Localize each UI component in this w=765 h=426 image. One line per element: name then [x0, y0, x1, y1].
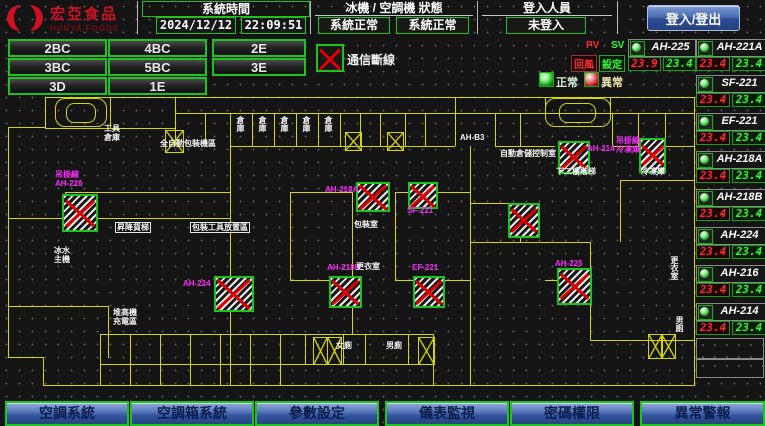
date-display: 2024/12/12 — [156, 17, 236, 34]
normal-label: 正常 — [556, 74, 578, 90]
floorplan-wall — [65, 192, 230, 193]
status-lamp-icon — [630, 41, 645, 56]
unit-panel-AH-218A[interactable]: AH-218A — [696, 151, 765, 169]
room-label: 昇降貨梯 — [115, 222, 151, 233]
nav-button-3[interactable]: 參數設定 — [255, 401, 379, 426]
nav-button-5[interactable]: 密碼權限 — [510, 401, 634, 426]
unit-panel-AH-221A[interactable]: AH-221A — [696, 39, 765, 57]
room-label: 更衣室 — [670, 256, 679, 280]
sv-value: 23.4 — [732, 169, 765, 183]
nav-button-2[interactable]: 空調箱系統 — [130, 401, 254, 426]
floorplan-wall — [318, 113, 319, 146]
pv-label: PV — [586, 40, 599, 51]
empty-unit-slot — [696, 338, 764, 359]
floorplan-wall — [8, 127, 9, 358]
status-lamp-icon — [698, 77, 713, 92]
floorplan-wall — [280, 334, 281, 385]
sv-value: 23.4 — [732, 207, 765, 221]
hmi-screen: 宏亞食品 HUNYA FOODS 系統時間 2024/12/12 22:09:5… — [0, 0, 765, 426]
floorplan-wall — [590, 340, 694, 341]
floorplan-wall — [8, 127, 46, 128]
floorplan-wall — [252, 113, 253, 146]
sv-value: 23.4 — [663, 57, 696, 71]
unit-name: AH-224 — [714, 229, 765, 241]
room-label: 冷凍庫 — [641, 167, 665, 176]
floorplan-wall — [220, 334, 221, 385]
nav-button-1[interactable]: 空調系統 — [5, 401, 129, 426]
floorplan-wall — [130, 334, 131, 385]
floorplan-wall — [520, 113, 521, 146]
floorplan-wall — [230, 146, 231, 386]
equipment-label: AH-214 — [587, 144, 615, 153]
floor-button-3E[interactable]: 3E — [212, 58, 306, 76]
return-air-label: 回風 — [571, 55, 597, 72]
unit-name: AH-214 — [714, 305, 765, 317]
login-logout-button[interactable]: 登入/登出 — [647, 5, 740, 31]
logo-title: 宏亞食品 — [50, 3, 119, 24]
status-lamp-icon — [698, 305, 713, 320]
unit-panel-SF-221[interactable]: SF-221 — [696, 75, 765, 93]
room-label: 倉庫 — [324, 116, 333, 132]
normal-lamp-icon — [539, 72, 554, 87]
unit-values-AH-221A: 23.423.4 — [696, 57, 764, 71]
setpoint-label: 設定 — [599, 55, 625, 72]
room-label: 包裝室 — [354, 220, 378, 229]
offline-unit-icon — [356, 182, 390, 212]
logo-subtitle: HUNYA FOODS — [50, 24, 119, 33]
room-label: 包裝工具放置區 — [190, 222, 250, 233]
floorplan-wall — [694, 97, 695, 386]
sv-label: SV — [611, 40, 624, 51]
equipment-label: EF-221 — [412, 263, 438, 272]
header: 宏亞食品 HUNYA FOODS 系統時間 2024/12/12 22:09:5… — [0, 0, 765, 36]
equipment-label: SF-221 — [407, 206, 433, 215]
room-label: 下二樓階梯 — [556, 167, 596, 176]
floorplan-wall — [108, 306, 109, 358]
floorplan-wall — [408, 334, 409, 364]
floor-button-2E[interactable]: 2E — [212, 39, 306, 57]
room-label: 堆高機 充電區 — [113, 308, 137, 326]
sv-value: 23.4 — [732, 321, 765, 335]
pv-value: 23.4 — [696, 207, 730, 221]
room-label: 倉庫 — [280, 116, 289, 132]
floor-button-5BC[interactable]: 5BC — [108, 58, 207, 76]
status-lamp-icon — [698, 115, 713, 130]
floorplan-wall — [612, 113, 613, 146]
floorplan-wall — [380, 113, 381, 146]
unit-values-AH-218A: 23.423.4 — [696, 169, 764, 183]
floorplan-wall — [425, 113, 426, 146]
unit-name: AH-218B — [714, 191, 765, 203]
sv-value: 23.4 — [732, 57, 765, 71]
ahu-status: 系統正常 — [396, 17, 469, 34]
room-label: 全自動包裝機區 — [160, 139, 216, 148]
floorplan-wall — [340, 113, 341, 146]
sv-value: 23.4 — [732, 283, 765, 297]
offline-legend-icon — [316, 44, 344, 72]
floorplan-wall — [8, 306, 108, 307]
elevator-icon — [55, 98, 107, 127]
equipment-label: 吊掛線 冷凍庫 — [616, 136, 640, 154]
status-lamp-icon — [698, 41, 713, 56]
floorplan-wall — [100, 334, 433, 335]
offline-unit-icon — [508, 203, 540, 238]
status-lamp-icon — [698, 153, 713, 168]
pv-value: 23.4 — [696, 321, 730, 335]
offline-legend-label: 通信斷線 — [347, 51, 395, 68]
floorplan-wall — [455, 97, 456, 146]
status-lamp-icon — [698, 229, 713, 244]
empty-unit-slot — [696, 359, 764, 378]
offline-unit-icon — [214, 276, 254, 312]
equipment-label: AH-218A — [325, 185, 358, 194]
nav-button-6[interactable]: 異常警報 — [640, 401, 765, 426]
floorplan-wall — [230, 146, 455, 147]
unit-panel-EF-221[interactable]: EF-221 — [696, 113, 765, 131]
equipment-label: 吊掛線 AH-226 — [55, 170, 83, 188]
logo: 宏亞食品 HUNYA FOODS — [6, 3, 119, 33]
floor-button-2BC[interactable]: 2BC — [8, 39, 107, 57]
abnormal-label: 異常 — [601, 74, 623, 90]
stair-icon — [661, 334, 676, 359]
floorplan-wall — [305, 334, 306, 364]
floorplan-wall — [495, 113, 496, 146]
unit-values-SF-221: 23.423.4 — [696, 93, 764, 107]
equipment-label: AH-224 — [183, 279, 211, 288]
room-label: 工具 倉庫 — [104, 124, 120, 142]
floorplan-wall — [405, 113, 406, 146]
pv-value: 23.9 — [628, 57, 661, 71]
unit-panel-AH-218B[interactable]: AH-218B — [696, 189, 765, 207]
sv-value: 23.4 — [732, 93, 765, 107]
unit-name: AH-218A — [714, 153, 765, 165]
offline-unit-icon — [408, 182, 438, 209]
floorplan-wall — [290, 192, 291, 280]
hunya-logo-icon — [6, 3, 44, 33]
nav-button-4[interactable]: 儀表監視 — [385, 401, 509, 426]
floorplan-wall — [100, 364, 305, 365]
unit-panel-AH-214[interactable]: AH-214 — [696, 303, 765, 321]
offline-unit-icon — [413, 276, 445, 308]
pv-value: 23.4 — [696, 57, 730, 71]
unit-values-AH-218B: 23.423.4 — [696, 207, 764, 221]
floorplan-wall — [230, 113, 231, 146]
stair-icon — [387, 132, 404, 151]
floorplan-wall — [470, 146, 471, 386]
system-time-label: 系統時間 — [142, 1, 310, 17]
floorplan-wall — [274, 113, 275, 146]
unit-values-AH-225: 23.923.4 — [628, 57, 694, 71]
floor-button-4BC[interactable]: 4BC — [108, 39, 207, 57]
offline-unit-icon — [329, 276, 362, 308]
unit-panel-AH-224[interactable]: AH-224 — [696, 227, 765, 245]
unit-name: AH-225 — [646, 41, 695, 53]
unit-values-AH-216: 23.423.4 — [696, 283, 764, 297]
floorplan-wall — [160, 334, 161, 385]
unit-values-AH-224: 23.423.4 — [696, 245, 764, 259]
room-label: 倉庫 — [236, 116, 245, 132]
floorplan-wall — [43, 357, 44, 386]
floorplan-wall — [43, 385, 695, 386]
floorplan-wall — [495, 146, 555, 147]
room-label: 男廁 — [386, 341, 402, 350]
pv-value: 23.4 — [696, 169, 730, 183]
floorplan-wall — [45, 97, 46, 128]
elevator-icon — [545, 98, 611, 127]
offline-unit-icon — [62, 194, 98, 232]
unit-panel-AH-216[interactable]: AH-216 — [696, 265, 765, 283]
room-label: 女廁 — [336, 341, 352, 350]
unit-panel-AH-225[interactable]: AH-225 — [628, 39, 696, 57]
unit-name: AH-221A — [714, 41, 765, 53]
pv-value: 23.4 — [696, 93, 730, 107]
abnormal-lamp-icon — [584, 72, 599, 87]
pv-value: 23.4 — [696, 131, 730, 145]
status-lamp-icon — [698, 267, 713, 282]
room-label: 自動倉儲控制室 — [500, 149, 556, 158]
unit-values-EF-221: 23.423.4 — [696, 131, 764, 145]
unit-name: SF-221 — [714, 77, 765, 89]
stair-icon — [345, 132, 362, 151]
stair-icon — [313, 337, 328, 365]
pv-value: 23.4 — [696, 283, 730, 297]
floorplan-wall — [470, 242, 590, 243]
floorplan-wall — [395, 192, 396, 280]
login-user-label: 登入人員 — [482, 1, 612, 15]
floorplan-wall — [620, 180, 694, 181]
room-label: 冰水 主機 — [54, 246, 70, 264]
room-label: 倉庫 — [302, 116, 311, 132]
time-display: 22:09:51 — [241, 17, 306, 34]
floorplan-wall — [620, 180, 621, 242]
equipment-label: AH-225 — [555, 259, 583, 268]
floorplan-wall — [250, 334, 251, 385]
status-lamp-icon — [698, 191, 713, 206]
room-label: 倉庫 — [258, 116, 267, 132]
floor-button-3D[interactable]: 3D — [8, 77, 107, 95]
room-label: 更衣室 — [356, 262, 380, 271]
floorplan-wall — [365, 334, 366, 364]
stair-icon — [418, 337, 435, 365]
chiller-status: 系統正常 — [318, 17, 390, 34]
login-user-value: 未登入 — [506, 17, 586, 34]
unit-name: AH-216 — [714, 267, 765, 279]
floorplan-wall — [8, 218, 230, 219]
floorplan-wall — [8, 357, 44, 358]
floor-button-1E[interactable]: 1E — [108, 77, 207, 95]
unit-values-AH-214: 23.423.4 — [696, 321, 764, 335]
offline-unit-icon — [557, 268, 592, 305]
floorplan-wall — [100, 334, 101, 385]
pv-value: 23.4 — [696, 245, 730, 259]
floor-button-3BC[interactable]: 3BC — [8, 58, 107, 76]
room-label: 男廁 — [675, 316, 684, 332]
chiller-ahu-status-label: 冰機 / 空調機 狀態 — [315, 1, 473, 15]
sv-value: 23.4 — [732, 131, 765, 145]
floorplan-wall — [190, 334, 191, 385]
room-label: AH-B3 — [460, 133, 484, 142]
sv-value: 23.4 — [732, 245, 765, 259]
floorplan-wall — [296, 113, 297, 146]
unit-name: EF-221 — [714, 115, 765, 127]
